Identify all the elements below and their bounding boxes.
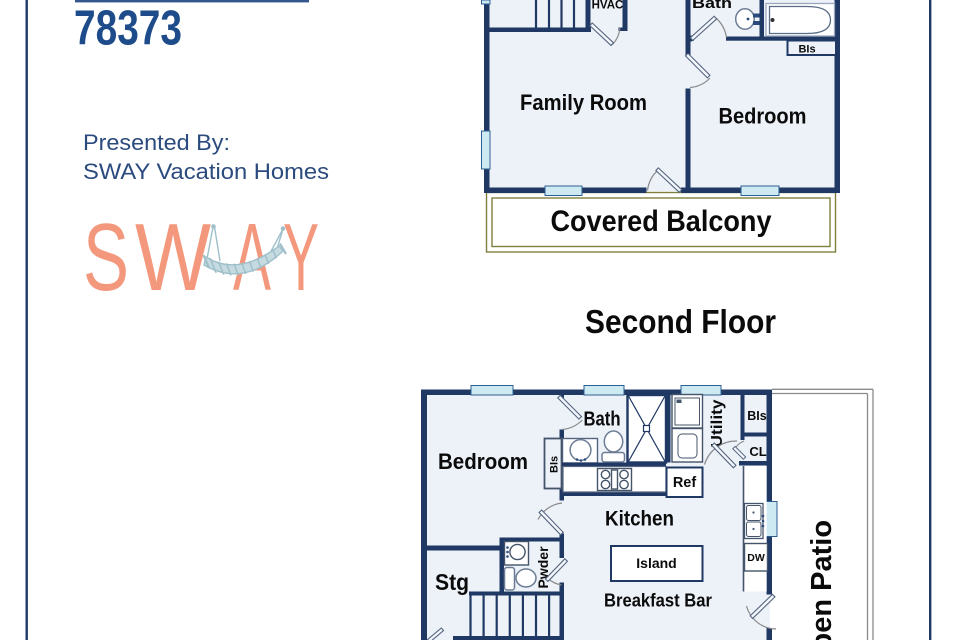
svg-text:Y: Y bbox=[283, 204, 319, 311]
svg-text:Pwder: Pwder bbox=[535, 546, 551, 589]
svg-text:Ref: Ref bbox=[673, 475, 697, 491]
svg-text:Bedroom: Bedroom bbox=[719, 104, 807, 129]
svg-text:Bath: Bath bbox=[584, 409, 621, 431]
svg-text:Bedroom: Bedroom bbox=[438, 449, 528, 474]
svg-text:BIs: BIs bbox=[798, 44, 815, 56]
svg-text:78373: 78373 bbox=[74, 2, 182, 56]
svg-text:Bath: Bath bbox=[692, 0, 732, 12]
svg-text:W: W bbox=[135, 204, 211, 311]
svg-text:Presented By:: Presented By: bbox=[83, 130, 230, 155]
svg-text:Family Room: Family Room bbox=[520, 90, 647, 115]
svg-text:BIs: BIs bbox=[747, 409, 767, 423]
svg-text:BIs: BIs bbox=[549, 456, 561, 473]
svg-text:HVAC: HVAC bbox=[592, 0, 624, 12]
svg-text:Kitchen: Kitchen bbox=[605, 508, 674, 531]
svg-text:DW: DW bbox=[747, 552, 765, 564]
svg-text:Open Patio: Open Patio bbox=[806, 520, 838, 640]
svg-text:CL: CL bbox=[749, 444, 766, 459]
svg-text:SWAY Vacation Homes: SWAY Vacation Homes bbox=[83, 159, 329, 184]
svg-text:Utility: Utility bbox=[709, 399, 726, 447]
svg-text:Breakfast Bar: Breakfast Bar bbox=[604, 590, 712, 611]
svg-text:Second Floor: Second Floor bbox=[585, 303, 776, 340]
svg-text:S: S bbox=[83, 204, 129, 311]
svg-text:Island: Island bbox=[636, 555, 676, 571]
svg-text:Stg: Stg bbox=[435, 569, 469, 595]
svg-text:Covered Balcony: Covered Balcony bbox=[551, 205, 772, 238]
